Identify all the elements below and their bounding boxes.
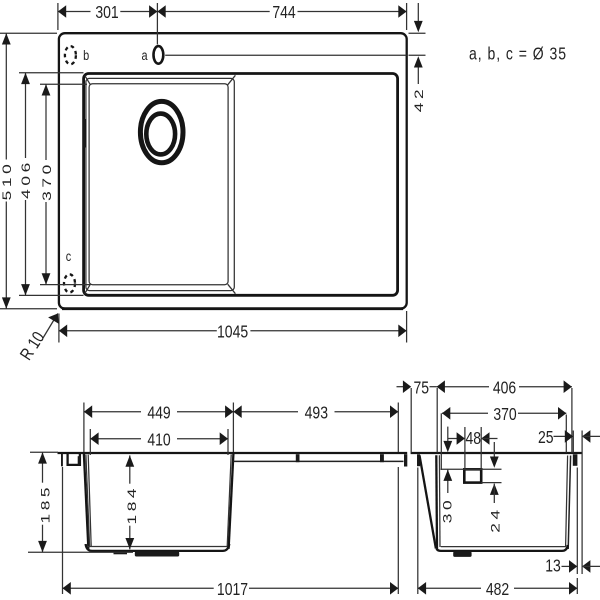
svg-text:R 10: R 10 — [17, 329, 49, 364]
svg-text:482: 482 — [486, 581, 509, 600]
svg-text:406: 406 — [19, 159, 33, 199]
svg-text:1045: 1045 — [217, 323, 248, 342]
svg-text:42: 42 — [412, 86, 426, 112]
svg-text:370: 370 — [493, 406, 517, 425]
svg-text:1017: 1017 — [217, 581, 248, 600]
svg-text:410: 410 — [147, 431, 171, 450]
svg-text:75: 75 — [414, 379, 430, 398]
svg-text:a, b, c = Ø 35: a, b, c = Ø 35 — [469, 45, 567, 64]
svg-text:13: 13 — [545, 557, 561, 576]
svg-text:30: 30 — [441, 497, 455, 523]
svg-text:c: c — [66, 249, 71, 265]
svg-text:301: 301 — [95, 4, 118, 23]
svg-text:b: b — [83, 48, 89, 64]
svg-text:24: 24 — [489, 506, 503, 532]
svg-text:744: 744 — [272, 4, 296, 23]
svg-text:25: 25 — [538, 429, 554, 448]
svg-text:48: 48 — [466, 430, 482, 449]
svg-text:185: 185 — [39, 484, 53, 524]
svg-text:184: 184 — [125, 485, 139, 525]
svg-text:510: 510 — [0, 161, 14, 201]
svg-text:a: a — [141, 48, 147, 64]
svg-text:449: 449 — [147, 404, 170, 423]
svg-text:370: 370 — [40, 161, 54, 201]
svg-text:406: 406 — [493, 379, 517, 398]
svg-text:493: 493 — [305, 404, 329, 423]
